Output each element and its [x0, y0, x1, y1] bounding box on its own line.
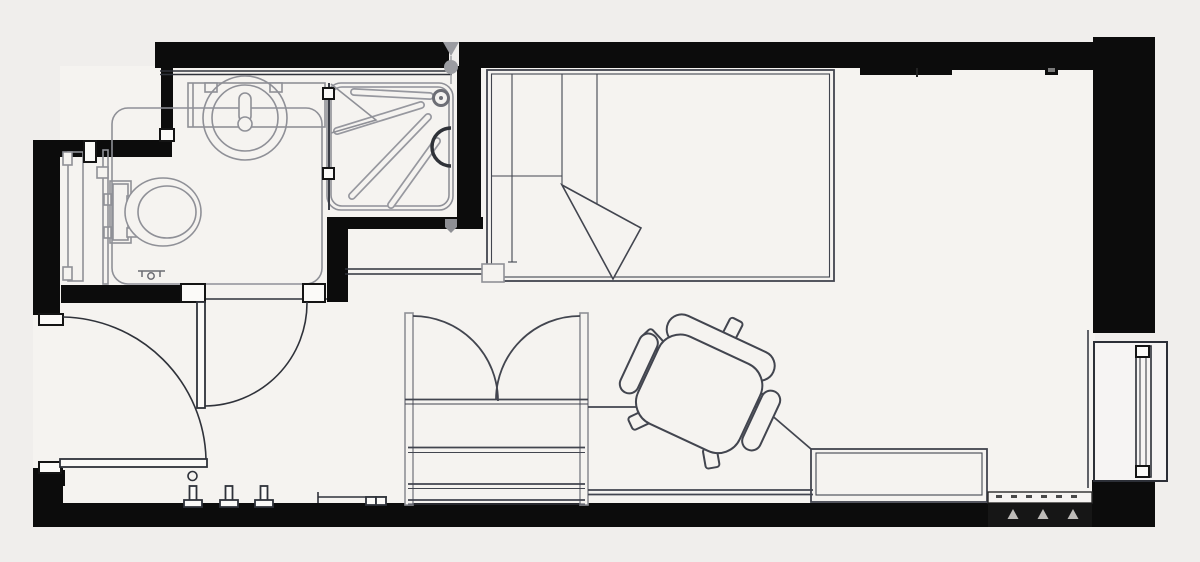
wall-left	[33, 140, 60, 315]
wall-bottom-left-column	[33, 468, 63, 527]
floor-plan-drawing	[0, 0, 1200, 562]
basin-tap-head	[238, 117, 252, 131]
radiator-valve-top	[1136, 346, 1149, 357]
entry-jamb-top	[39, 314, 63, 325]
entry-opening-floor	[33, 315, 63, 468]
nib-jamb	[160, 129, 174, 141]
window-frame	[1094, 342, 1167, 481]
marker-node-icon	[444, 60, 458, 74]
window-assembly	[1088, 330, 1167, 488]
wall-right-upper	[1093, 37, 1155, 333]
tp-holder	[97, 167, 108, 178]
skirting-box-2	[376, 497, 386, 505]
partition-end-block	[482, 264, 504, 282]
curtain-bracket-inner	[1048, 68, 1055, 72]
entry-jamb-bottom	[39, 462, 61, 473]
bathroom-door-leaf	[197, 302, 205, 408]
bathroom-door-latch-jamb	[303, 284, 325, 302]
toilet-bowl	[125, 178, 201, 246]
wall-top-center	[459, 42, 860, 68]
wall-door-latch-leg	[327, 218, 348, 302]
bathroom-hatch-jamb	[84, 141, 96, 162]
wardrobe-right-panel	[580, 313, 588, 505]
radiator-valve-bottom	[1136, 466, 1149, 477]
wall-bathroom-bottom	[61, 285, 183, 303]
shower-drain-dot	[439, 96, 443, 100]
wall-top-bed	[860, 42, 952, 75]
wall-right-lower	[1092, 480, 1155, 527]
entry-door-leaf	[60, 459, 207, 467]
screen-clamp-top	[323, 88, 334, 99]
rail-clip-bottom	[63, 267, 72, 280]
rail-clip-top	[63, 152, 72, 165]
wardrobe-left-panel	[405, 313, 413, 505]
bathroom-door-hinge-jamb	[181, 284, 205, 302]
coat-hooks	[184, 486, 273, 507]
skirting-box-1	[366, 497, 376, 505]
screen-clamp-bottom	[323, 168, 334, 179]
wall-top-left	[155, 42, 449, 68]
floor-plan-canvas	[0, 0, 1200, 562]
wall-shower-bed-partition	[457, 66, 481, 218]
wall-shower-band	[327, 217, 483, 229]
hatched-wall-strip	[988, 492, 1092, 527]
wall-top-right	[952, 42, 1093, 70]
